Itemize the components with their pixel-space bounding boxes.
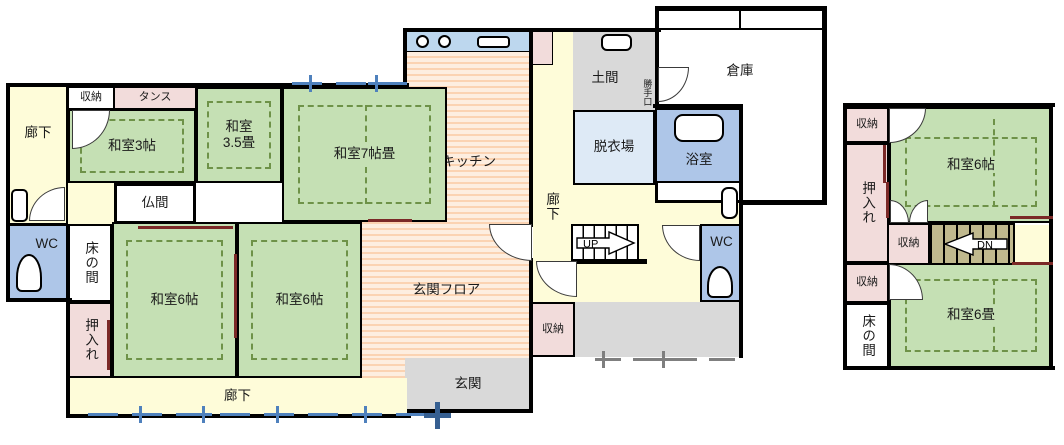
fusuma-line — [886, 182, 889, 218]
wall — [6, 83, 10, 302]
dimension-tick — [655, 351, 672, 368]
room-datsuiba: 脱衣場 — [573, 110, 655, 185]
f2-closet-top-label: 収納 — [856, 118, 878, 131]
stove-icon — [477, 36, 510, 48]
yokushitsu-label: 浴室 — [686, 152, 713, 168]
kitchen-cabinet — [531, 31, 553, 65]
toilet-icon — [707, 266, 733, 298]
fusuma-line — [234, 254, 237, 338]
wall — [843, 103, 847, 370]
genkan-floor-extension — [362, 358, 407, 378]
wc-left-label: WC — [36, 236, 59, 252]
wall — [653, 104, 743, 108]
bathtub-icon — [674, 114, 724, 142]
washbasin-icon — [721, 187, 738, 219]
f2-closet-mid-label: 収納 — [898, 237, 920, 250]
wall — [823, 6, 827, 205]
wall — [529, 28, 533, 227]
fusuma-line — [1012, 262, 1053, 265]
wall — [743, 201, 827, 205]
f2-closet-top: 収納 — [845, 107, 889, 143]
f2-oshiire-label: 押入れ — [859, 181, 875, 225]
washitsu-6jo-b-label: 和室6帖 — [273, 292, 325, 308]
wall — [739, 104, 743, 358]
corridor-bottom-label: 廊下 — [224, 388, 251, 404]
fusuma-line — [368, 219, 412, 222]
room-washitsu-35: 和室 3.5畳 — [196, 87, 282, 183]
f2-closet-bottom: 収納 — [845, 263, 889, 303]
genkan-label: 玄関 — [455, 376, 482, 392]
dimension-tick — [132, 406, 149, 423]
fusuma-line — [138, 226, 233, 229]
sink-bowl-icon — [416, 35, 429, 48]
souko-label: 倉庫 — [727, 63, 754, 79]
dn-label: DN — [977, 240, 993, 252]
washitsu-7jo-label: 和室7帖畳 — [332, 146, 398, 162]
dimension-tick — [302, 75, 319, 92]
souko-band-divider — [739, 10, 741, 30]
corridor-left-label: 廊下 — [25, 125, 52, 141]
fusuma-line — [883, 145, 886, 183]
wc-right-label: WC — [710, 234, 733, 250]
up-label: UP — [583, 239, 598, 251]
f2-washitsu-6jou-label: 和室6畳 — [945, 307, 997, 323]
fusuma-line — [1010, 216, 1053, 219]
wall — [66, 298, 70, 418]
room-washitsu-6jo-b: 和室6帖 — [237, 222, 362, 378]
wall — [533, 28, 661, 32]
washitsu-35-label-line1: 和室 — [226, 119, 253, 135]
room-butsuma: 仏間 — [114, 183, 196, 224]
room-washitsu-7jo: 和室7帖畳 — [282, 87, 447, 222]
tansu: タンス — [114, 87, 196, 109]
wall — [403, 28, 407, 87]
doma-sink-icon — [601, 34, 632, 51]
closet-center-label: 収納 — [542, 323, 564, 336]
katteguchi-strip: 勝手口 — [637, 28, 657, 110]
dimension-tick — [368, 75, 385, 92]
tokonoma-left-label: 床の間 — [82, 241, 98, 285]
kitchen-label: キッチン — [442, 154, 496, 170]
wall — [843, 103, 1055, 107]
wall — [655, 6, 827, 10]
dimension-tick-large — [424, 402, 451, 429]
butsuma-label: 仏間 — [142, 195, 169, 211]
sink-bowl-icon — [438, 35, 451, 48]
floor-plan: キッチン 倉庫 土間 勝手口 玄関フロア 玄関 廊下 廊下 収納 タンス 和室3… — [0, 0, 1064, 445]
dimension-tick — [595, 351, 612, 368]
f2-room-tokonoma: 床の間 — [845, 303, 889, 368]
fusuma-line — [107, 320, 110, 370]
genkan-floor-label: 玄関フロア — [413, 282, 481, 298]
closet-top: 収納 — [68, 87, 114, 109]
room-porch — [573, 302, 743, 357]
corridor-center-label: 廊下 — [543, 192, 559, 221]
washitsu-3jo-label: 和室3帖 — [108, 138, 156, 154]
corridor-mid-small — [68, 183, 114, 224]
f2-tokonoma-label: 床の間 — [859, 314, 875, 358]
room-tokonoma-left: 床の間 — [68, 224, 112, 302]
tansu-label: タンス — [139, 91, 172, 104]
katteguchi-label: 勝手口 — [642, 79, 653, 106]
closet-center: 収納 — [531, 302, 575, 357]
f2-closet-bottom-label: 収納 — [856, 276, 878, 289]
wall — [529, 258, 533, 411]
corridor-center-label-box: 廊下 — [538, 183, 564, 229]
dimension-tick — [357, 406, 374, 423]
shoe-cabinet-icon — [11, 189, 28, 222]
room-oshiire-left: 押入れ — [68, 302, 112, 378]
datsuiba-label: 脱衣場 — [594, 139, 635, 155]
washitsu-6jo-a-label: 和室6帖 — [148, 292, 200, 308]
closet-top-label: 収納 — [80, 91, 102, 104]
wall — [843, 366, 1055, 370]
f2-stair-landing — [1015, 225, 1051, 263]
wall — [6, 298, 72, 302]
dimension-tick — [195, 406, 212, 423]
wall — [571, 259, 647, 264]
f2-washitsu-6jo-label: 和室6帖 — [945, 157, 997, 173]
wall — [1049, 103, 1053, 370]
dn-arrow-icon: DN — [935, 229, 1009, 259]
oshiire-left-label: 押入れ — [82, 318, 98, 362]
up-arrow-icon: UP — [575, 229, 637, 257]
washitsu-35-label-line2: 3.5畳 — [223, 135, 255, 151]
doma-label: 土間 — [592, 70, 619, 86]
wall — [403, 28, 535, 32]
room-washitsu-6jo-a: 和室6帖 — [112, 222, 237, 378]
f2-closet-mid: 収納 — [887, 223, 930, 265]
dimension-tick — [269, 406, 286, 423]
